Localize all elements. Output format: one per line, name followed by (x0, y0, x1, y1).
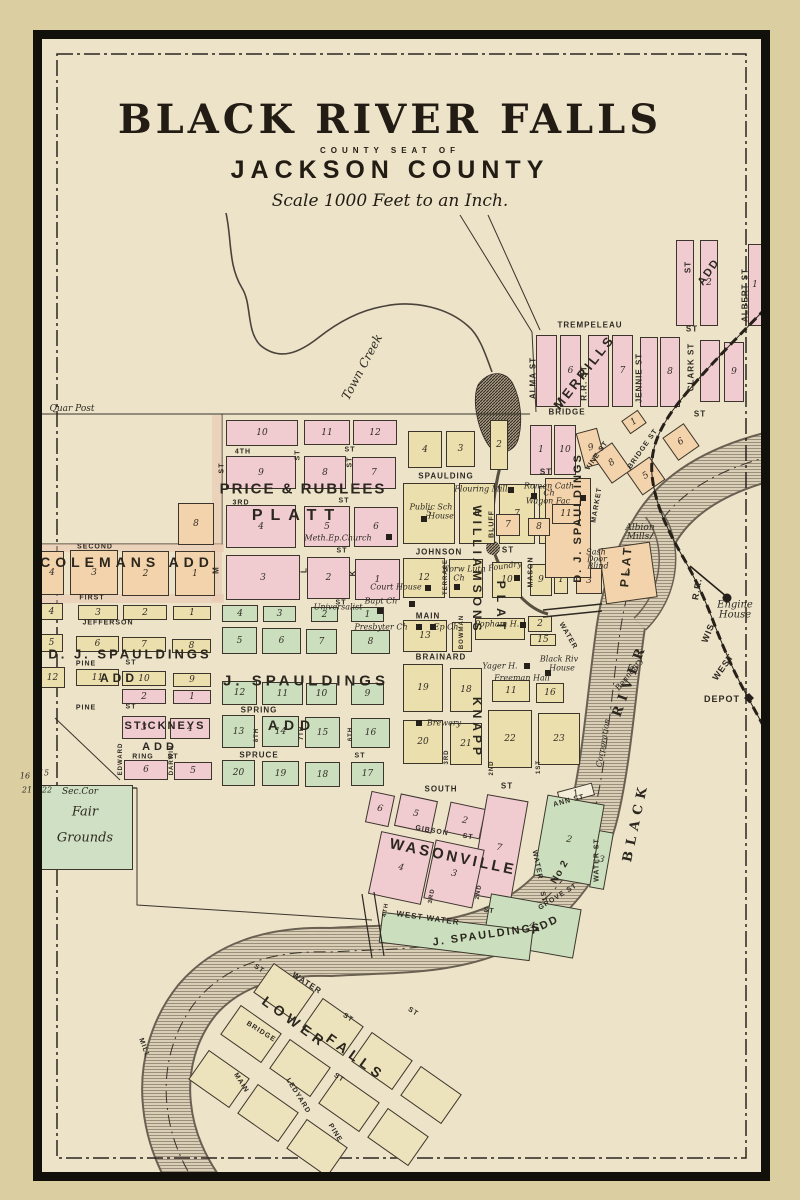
place-label: 16 (20, 772, 30, 781)
street-label: BOWMAN (459, 615, 465, 649)
street-label: FIRST (79, 595, 104, 602)
place-label: Bapt Ch (365, 597, 398, 606)
addition-label: ADD (100, 671, 138, 685)
building-mark (416, 624, 422, 630)
street-label: ST (126, 704, 137, 711)
place-label: Universalist (314, 603, 363, 612)
map-scale-note: Scale 1000 Feet to an Inch. (0, 191, 780, 211)
place-label: Ch (453, 574, 464, 583)
street-label: SOUTH (425, 785, 458, 794)
place-label: Flouring Mills (454, 485, 511, 494)
building-mark (416, 720, 422, 726)
street-label: 3RD (232, 500, 249, 507)
street-label: 4TH (235, 449, 251, 456)
place-label: Brewery (427, 719, 461, 728)
street-label: ST (345, 447, 356, 454)
place-label: Blind (587, 562, 608, 571)
street-label: ST (686, 325, 698, 334)
main-street-bridge (543, 604, 602, 617)
addition-label: D. J. SPAULDINGS (572, 453, 584, 583)
street-label: 3RD (444, 749, 450, 764)
building-mark (409, 601, 415, 607)
street-label: ST (501, 782, 513, 791)
street-label: SPRING (241, 706, 278, 715)
addition-label: D. J. SPAULDINGS (48, 647, 211, 662)
place-label: Norw Luth (442, 565, 486, 574)
street-label: WATER ST (594, 838, 601, 882)
street-label: ST (295, 450, 302, 461)
street-label: SPRUCE (239, 751, 278, 760)
street-label: ST (540, 468, 552, 477)
place-label: 15 (39, 769, 49, 778)
place-label: Mills (627, 532, 649, 542)
street-label: BRIDGE (548, 408, 585, 417)
addition-label: PLATT (252, 507, 342, 525)
street-label: SPAULDING (418, 472, 474, 481)
place-label: Quar Post (49, 404, 94, 414)
street-label: L (300, 567, 309, 573)
addition-label: COLEMANS ADD (40, 554, 214, 570)
map-subtitle-seat: COUNTY SEAT OF (0, 146, 780, 155)
building-mark (524, 663, 530, 669)
street-label: JOHNSON (416, 548, 463, 557)
street-label: BLUFF (489, 510, 496, 538)
place-label: House (549, 664, 575, 673)
map-title: BLACK RIVER FALLS (0, 96, 780, 143)
street-label: ST (347, 457, 354, 468)
place-label: Public Sch (410, 503, 453, 512)
street-label: BRAINARD (416, 653, 467, 662)
map-title-block: BLACK RIVER FALLS COUNTY SEAT OF JACKSON… (0, 96, 780, 211)
street-label: 8TH (254, 728, 260, 742)
street-label: ST (337, 548, 348, 555)
street-label: ST (502, 546, 514, 555)
street-label: ST (355, 753, 366, 760)
addition-label: ADD (142, 741, 178, 753)
place-label: Meth.Ep.Church (304, 534, 371, 543)
street-label: JENNIE ST (635, 353, 644, 403)
building-mark (377, 608, 383, 614)
street-label: MASON (528, 556, 535, 587)
addition-label: STICKNEYS (125, 720, 206, 732)
street-label: RING (132, 754, 154, 761)
place-label: 21 (22, 786, 32, 795)
street-label: TREMPELEAU (557, 321, 622, 330)
street-label: ALMA ST (529, 357, 538, 399)
place-label: Court House (370, 583, 421, 592)
addition-label: J. SPAULDINGS (223, 673, 389, 690)
street-label: 6TH (348, 727, 354, 741)
place-label: Sec.Cor (62, 787, 98, 797)
street-label: ST (339, 498, 350, 505)
addition-label: KNAPP (470, 697, 484, 759)
street-label: ALBERT ST (741, 268, 750, 322)
street-label: PINE (76, 705, 96, 712)
lower-falls-bridge (362, 892, 384, 958)
street-label: PINE (76, 661, 96, 668)
place-label: House (428, 512, 454, 521)
place-label: Black Riv (540, 655, 578, 664)
place-label: Fair (72, 805, 98, 820)
place-label: Popham H. (475, 620, 520, 629)
place-label: 22 (42, 786, 52, 795)
street-label: ST (684, 261, 693, 273)
street-label: ST (694, 410, 706, 419)
place-label: Wagon Fac (526, 497, 570, 506)
building-mark (520, 622, 526, 628)
building-mark (386, 534, 392, 540)
street-label: 1ST (536, 760, 542, 774)
street-label: MAIN (416, 612, 440, 621)
place-label: Freeman Hall (494, 674, 550, 683)
place-label: House (719, 610, 751, 621)
place-label: Ep Ch (434, 623, 459, 632)
addition-label: ADD (268, 717, 316, 733)
map-subtitle-county: JACKSON COUNTY (0, 156, 780, 185)
street-label: K (349, 570, 358, 577)
place-label: Grounds (57, 831, 113, 846)
building-mark (514, 575, 520, 581)
street-label: ST (483, 907, 495, 915)
street-label: ST (219, 463, 226, 474)
street-label: JEFFERSON (82, 620, 133, 627)
street-label: 2ND (489, 760, 495, 775)
building-mark (425, 585, 431, 591)
street-label: EDWARD (118, 743, 124, 776)
street-label: CLARK ST (687, 343, 696, 391)
street-label: SECOND (77, 544, 113, 551)
place-label: Presbyter Ch (354, 623, 407, 632)
street-label: DEPOT (704, 694, 740, 704)
addition-label: PRICE & RUBLEES (220, 481, 387, 498)
building-mark (421, 516, 427, 522)
map-page: 6789211011129874563214356781210913131918… (0, 0, 800, 1200)
place-label: Yager H. (482, 662, 517, 671)
building-mark (454, 584, 460, 590)
